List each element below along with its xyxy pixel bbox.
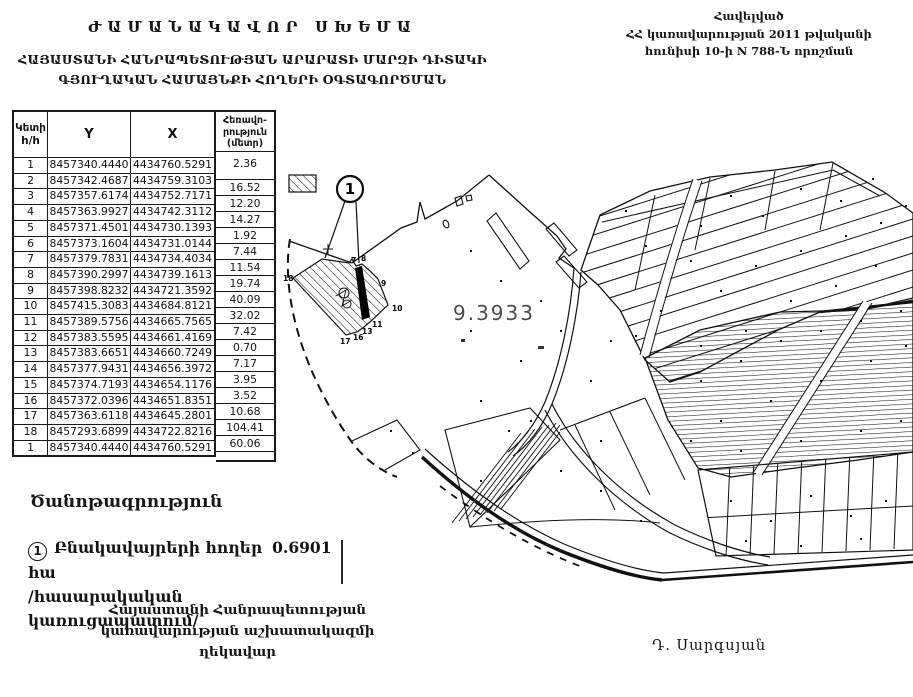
table-cell: 8	[13, 267, 48, 283]
table-row: 88457390.29974434739.1613	[13, 267, 215, 283]
distance-cell: 14.27	[216, 212, 274, 228]
document-subtitle-line1: ՀԱՅԱՍՏԱՆԻ ՀԱՆՐԱՊԵՏՈՒԹՅԱՆ ԱՐԱՐԱՏԻ ՄԱՐԶԻ Դ…	[0, 50, 505, 70]
distance-column-cells: 2.3616.5212.2014.271.927.4411.5419.7440.…	[216, 152, 274, 452]
scan-artifact-line	[341, 540, 343, 584]
distance-cell: 60.06	[216, 436, 274, 452]
distance-column: Հեռավո- րություն (մետր) 2.3616.5212.2014…	[216, 110, 276, 462]
table-cell: 8457363.6118	[48, 409, 131, 425]
table-row: 78457379.78314434734.4034	[13, 252, 215, 268]
table-row: 68457373.16044434731.0144	[13, 236, 215, 252]
distance-cell: 11.54	[216, 260, 274, 276]
table-cell: 8457389.5756	[48, 315, 131, 331]
table-cell: 8457357.6174	[48, 189, 131, 205]
distance-cell: 7.44	[216, 244, 274, 260]
table-cell: 12	[13, 330, 48, 346]
table-row: 98457398.82324434721.3592	[13, 283, 215, 299]
table-cell: 8457415.3083	[48, 299, 131, 315]
table-row: 108457415.30834434684.8121	[13, 299, 215, 315]
document-title: ԺԱՄԱՆԱԿԱՎՈՐ ՍԽԵՄԱ	[0, 18, 505, 36]
table-cell: 4434651.8351	[131, 393, 216, 409]
distance-cell: 10.68	[216, 404, 274, 420]
vertex-label: 8	[361, 254, 366, 263]
col-header-y: Y	[48, 111, 131, 158]
distance-cell: 1.92	[216, 228, 274, 244]
table-cell: 8457398.8232	[48, 283, 131, 299]
table-row: 128457383.55954434661.4169	[13, 330, 215, 346]
cadastral-map: 1 9.3933 181716131110987	[278, 150, 913, 597]
distance-cell: 7.42	[216, 324, 274, 340]
table-cell: 10	[13, 299, 48, 315]
table-cell: 4434665.7565	[131, 315, 216, 331]
vertex-label: 10	[392, 304, 402, 313]
table-row: 38457357.61744434752.7171	[13, 189, 215, 205]
table-cell: 8457340.4440	[48, 158, 131, 174]
org-line2: կառավարության աշխատակազմի	[65, 621, 410, 642]
distance-cell: 0.70	[216, 340, 274, 356]
table-cell: 15	[13, 377, 48, 393]
table-cell: 11	[13, 315, 48, 331]
vertex-label: 17	[340, 337, 350, 346]
table-cell: 8457293.6899	[48, 424, 131, 440]
annex-line1: Հավելված	[598, 8, 900, 26]
table-cell: 14	[13, 362, 48, 378]
building-footprints	[442, 195, 587, 288]
table-cell: 4434656.3972	[131, 362, 216, 378]
table-cell: 4434760.5291	[131, 158, 216, 174]
legend-hatch-swatch	[289, 175, 316, 192]
annex-reference-block: Հավելված ՀՀ կառավարության 2011 թվականի հ…	[598, 8, 900, 61]
table-cell: 4	[13, 205, 48, 221]
vertex-label: 9	[381, 279, 386, 288]
table-row: 168457372.03964434651.8351	[13, 393, 215, 409]
table-cell: 4434721.3592	[131, 283, 216, 299]
table-cell: 8457373.1604	[48, 236, 131, 252]
table-cell: 8457342.4687	[48, 173, 131, 189]
col-header-x: X	[131, 111, 216, 158]
table-cell: 8457372.0396	[48, 393, 131, 409]
table-cell: 1	[13, 158, 48, 174]
table-cell: 4434684.8121	[131, 299, 216, 315]
note-label: Բնակավայրերի հողեր	[54, 538, 262, 557]
table-cell: 13	[13, 346, 48, 362]
table-row: 158457374.71934434654.1176	[13, 377, 215, 393]
table-cell: 9	[13, 283, 48, 299]
distance-cell: 19.74	[216, 276, 274, 292]
table-cell: 6	[13, 236, 48, 252]
table-cell: 8457390.2997	[48, 267, 131, 283]
distance-cell: 12.20	[216, 196, 274, 212]
table-cell: 5	[13, 220, 48, 236]
table-cell: 8457379.7831	[48, 252, 131, 268]
distance-cell: 16.52	[216, 180, 274, 196]
coordinate-table-body: 18457340.44404434760.529128457342.468744…	[13, 158, 215, 457]
distance-cell: 32.02	[216, 308, 274, 324]
signatory-title-block: Հայաստանի Հանրապետության կառավարության ա…	[65, 600, 410, 663]
parcel-callout: 1	[325, 176, 363, 263]
table-cell: 8457377.9431	[48, 362, 131, 378]
annex-line3: հունիսի 10-ի N 788-Ն որոշման	[598, 43, 900, 61]
table-cell: 4434730.1393	[131, 220, 216, 236]
signature-name: Դ. Սարգսյան	[652, 638, 832, 654]
table-row: 48457363.99274434742.3112	[13, 205, 215, 221]
table-cell: 17	[13, 409, 48, 425]
table-row: 58457371.45014434730.1393	[13, 220, 215, 236]
table-cell: 8457383.6651	[48, 346, 131, 362]
table-cell: 1	[13, 440, 48, 456]
table-cell: 8457374.7193	[48, 377, 131, 393]
table-cell: 4434660.7249	[131, 346, 216, 362]
annex-line2: ՀՀ կառավարության 2011 թվականի	[598, 26, 900, 44]
table-cell: 4434759.3103	[131, 173, 216, 189]
table-row: 18457340.44404434760.5291	[13, 158, 215, 174]
table-cell: 4434661.4169	[131, 330, 216, 346]
distance-cell: 2.36	[216, 152, 274, 180]
vertex-label: 18	[283, 274, 293, 283]
map-mark	[461, 339, 465, 342]
coordinate-table: Կետի h/h Y X 18457340.44404434760.529128…	[12, 110, 276, 462]
table-cell: 8457383.5595	[48, 330, 131, 346]
table-cell: 8457371.4501	[48, 220, 131, 236]
table-cell: 4434752.7171	[131, 189, 216, 205]
hatched-field-block	[645, 300, 913, 477]
distance-cell: 3.95	[216, 372, 274, 388]
table-row: 178457363.61184434645.2801	[13, 409, 215, 425]
table-cell: 3	[13, 189, 48, 205]
note-marker-circle-icon: 1	[28, 542, 47, 561]
table-cell: 4434734.4034	[131, 252, 216, 268]
distance-cell: 3.52	[216, 388, 274, 404]
distance-cell: 7.17	[216, 356, 274, 372]
distance-cell: 40.09	[216, 292, 274, 308]
table-row: 148457377.94314434656.3972	[13, 362, 215, 378]
map-outer-boundary	[288, 175, 581, 477]
table-row: 28457342.46874434759.3103	[13, 173, 215, 189]
vertex-label: 7	[351, 256, 356, 265]
table-row: 118457389.57564434665.7565	[13, 315, 215, 331]
col-header-distance: Հեռավո- րություն (մետր)	[216, 112, 274, 152]
callout-number: 1	[345, 180, 355, 198]
table-cell: 4434654.1176	[131, 377, 216, 393]
org-line3: ղեկավար	[65, 642, 410, 663]
table-cell: 4434739.1613	[131, 267, 216, 283]
table-cell: 8457363.9927	[48, 205, 131, 221]
table-cell: 8457340.4440	[48, 440, 131, 456]
table-row: 188457293.68994434722.8216	[13, 424, 215, 440]
document-header: ԺԱՄԱՆԱԿԱՎՈՐ ՍԽԵՄԱ ՀԱՅԱՍՏԱՆԻ ՀԱՆՐԱՊԵՏՈՒԹՅ…	[0, 18, 505, 90]
table-cell: 4434731.0144	[131, 236, 216, 252]
vertex-label: 11	[372, 320, 382, 329]
area-value-label: 9.3933	[453, 301, 535, 325]
main-road	[422, 449, 913, 580]
table-cell: 2	[13, 173, 48, 189]
note-heading: Ծանոթագրություն	[30, 492, 222, 512]
org-line1: Հայաստանի Հանրապետության	[65, 600, 410, 621]
table-cell: 4434722.8216	[131, 424, 216, 440]
table-row: 18457340.44404434760.5291	[13, 440, 215, 456]
distance-cell: 104.41	[216, 420, 274, 436]
table-cell: 4434760.5291	[131, 440, 216, 456]
map-mark	[538, 346, 544, 349]
vertex-label: 13	[362, 327, 372, 336]
table-cell: 4434645.2801	[131, 409, 216, 425]
table-cell: 16	[13, 393, 48, 409]
table-cell: 4434742.3112	[131, 205, 216, 221]
table-cell: 18	[13, 424, 48, 440]
table-cell: 7	[13, 252, 48, 268]
col-header-point: Կետի h/h	[13, 111, 48, 158]
document-subtitle-line2: ԳՅՈՒՂԱԿԱՆ ՀԱՄԱՅՆՔԻ ՀՈՂԵՐԻ ՕԳՏԱԳՈՐԾՄԱՆ	[0, 70, 505, 90]
table-row: 138457383.66514434660.7249	[13, 346, 215, 362]
